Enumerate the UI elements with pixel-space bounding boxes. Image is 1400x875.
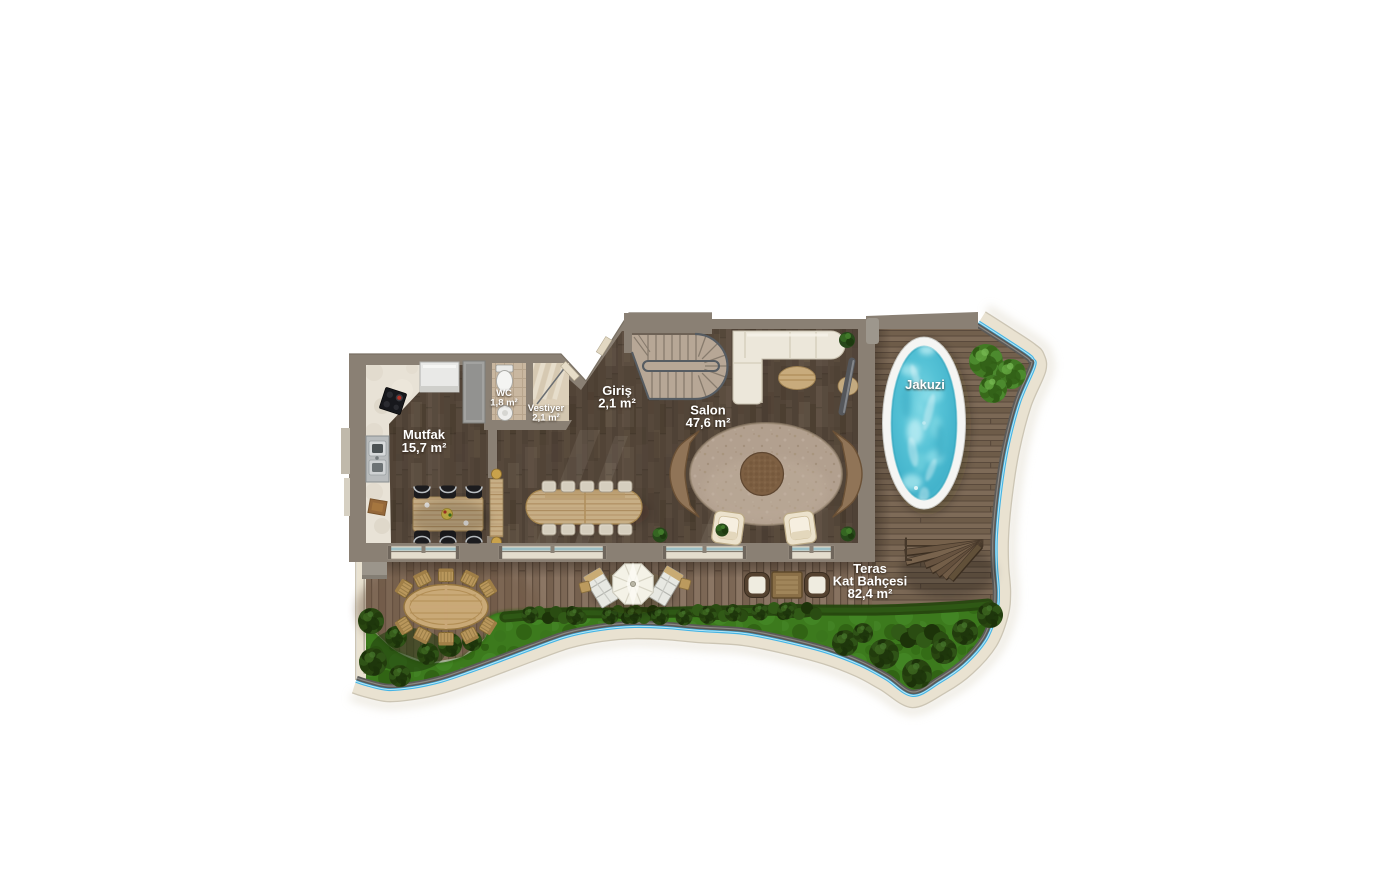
svg-text:Jakuzi: Jakuzi xyxy=(905,377,945,392)
svg-text:Giriş2,1 m²: Giriş2,1 m² xyxy=(598,383,636,411)
svg-text:Mutfak15,7 m²: Mutfak15,7 m² xyxy=(402,427,447,455)
svg-text:Salon47,6 m²: Salon47,6 m² xyxy=(686,403,731,431)
svg-text:Vestiyer2,1 m²: Vestiyer2,1 m² xyxy=(528,403,565,424)
